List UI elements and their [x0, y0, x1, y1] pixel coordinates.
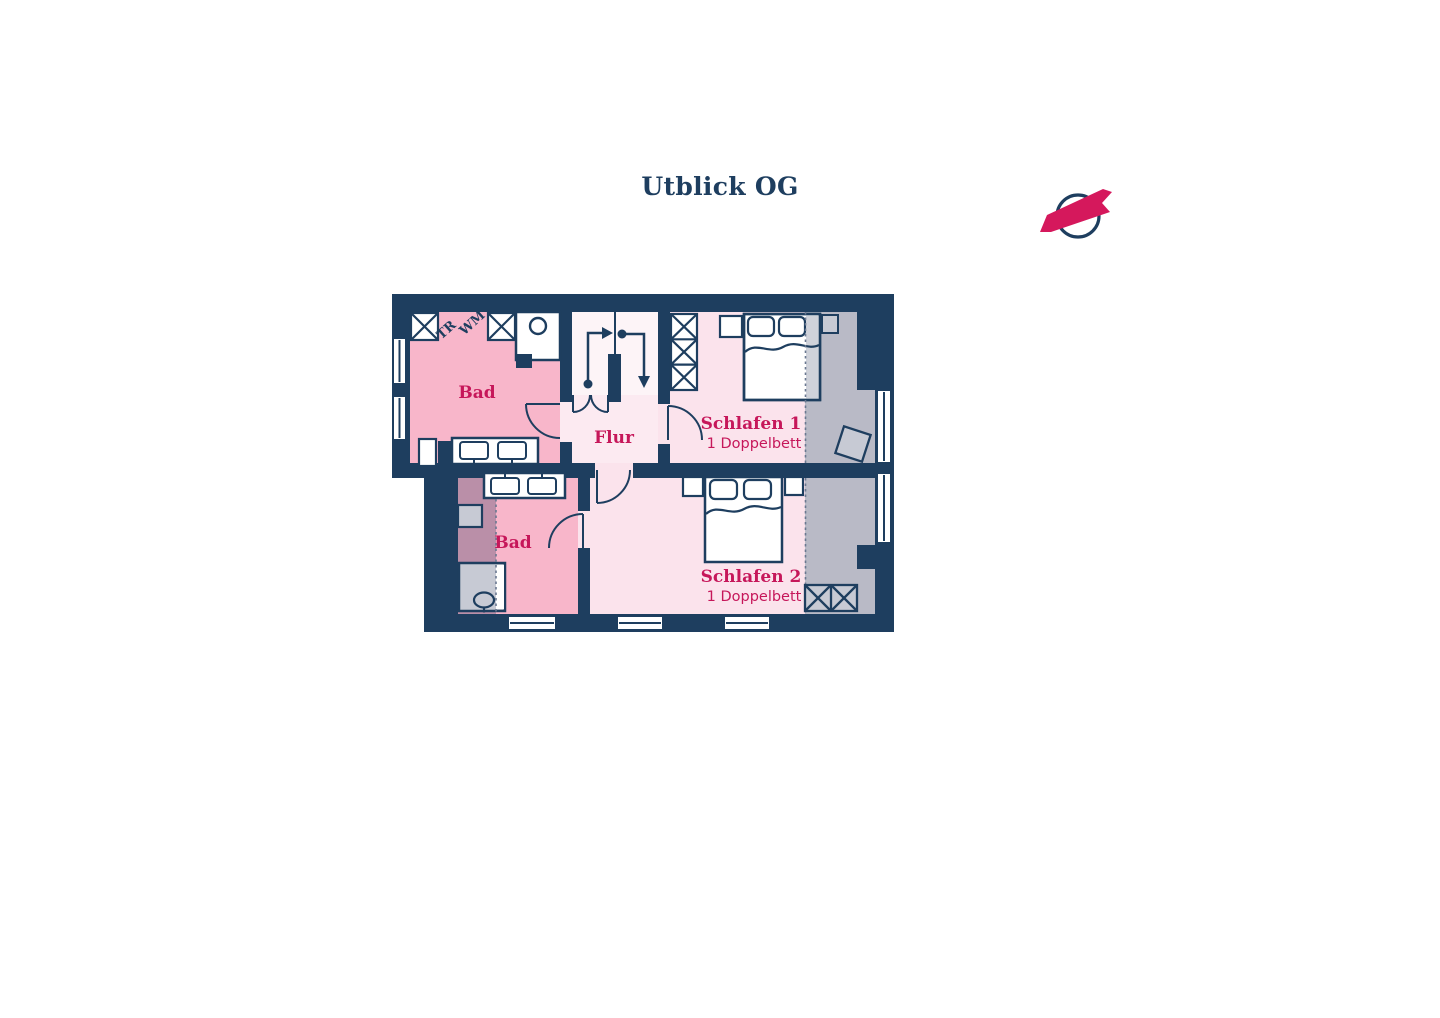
- bad2-shelf: [458, 505, 482, 527]
- schlafen1-nightstand-left: [720, 316, 742, 337]
- stair-newel-wall: [608, 354, 621, 402]
- window-left-lower: [393, 396, 406, 440]
- schlafen2-nightstand-right: [785, 477, 803, 495]
- schlafen1-label: Schlafen 1: [701, 414, 802, 434]
- window-right-schlafen2: [877, 473, 891, 543]
- bad1-wall-stub: [438, 441, 452, 467]
- window-bottom-bad2: [508, 616, 556, 630]
- schlafen2-label: Schlafen 2: [701, 567, 802, 587]
- bad1-double-washbasin: [452, 438, 538, 466]
- wall-block-bottom-right: [857, 545, 875, 569]
- window-left-upper: [393, 338, 406, 384]
- bad2-toilet: [459, 563, 505, 613]
- flur-label: Flur: [594, 428, 635, 448]
- shower: [516, 312, 560, 368]
- schlafen1-wardrobe: [671, 314, 697, 390]
- bad2-label: Bad: [494, 533, 531, 553]
- floor-plan: TR WM: [0, 0, 1440, 1018]
- compass-icon: [1040, 189, 1112, 237]
- window-bottom-middle: [617, 616, 663, 630]
- schlafen2-nightstand-left: [683, 477, 703, 496]
- washer-appliance: [488, 313, 515, 340]
- bad2-double-washbasin: [484, 470, 565, 498]
- pillow: [744, 480, 771, 499]
- schlafen2-beds: 1 Doppelbett: [707, 589, 802, 605]
- bad1-shelf: [419, 439, 436, 466]
- shower-wall-stub: [516, 354, 532, 368]
- schlafen2-door-opening: [595, 463, 633, 478]
- schlafen1-beds: 1 Doppelbett: [707, 436, 802, 452]
- pillow: [779, 317, 805, 336]
- window-bottom-schlafen2: [724, 616, 770, 630]
- schlafen2-wardrobe: [805, 585, 857, 611]
- pillow: [710, 480, 737, 499]
- window-right-schlafen1: [877, 390, 891, 463]
- bad1-door-opening: [560, 402, 572, 442]
- schlafen1-bed: [744, 314, 820, 400]
- schlafen2-bed: [705, 477, 782, 562]
- shower-head-icon: [530, 318, 546, 334]
- bad1-label: Bad: [458, 383, 495, 403]
- dryer-appliance: [411, 313, 438, 340]
- pillow: [748, 317, 774, 336]
- wall-block-top-right: [857, 312, 875, 390]
- schlafen1-nightstand-right: [822, 315, 838, 333]
